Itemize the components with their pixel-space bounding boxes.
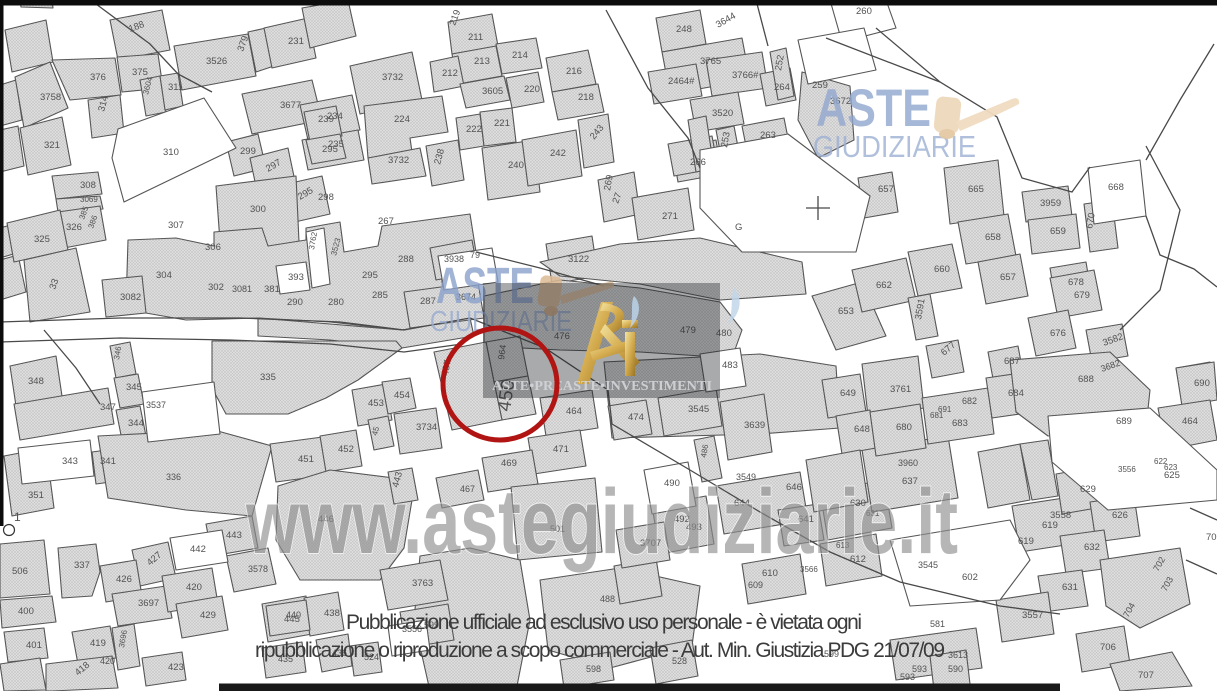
svg-text:662: 662: [876, 280, 892, 291]
svg-text:376: 376: [90, 72, 106, 83]
svg-text:242: 242: [550, 148, 566, 159]
svg-text:660: 660: [934, 264, 950, 275]
svg-text:657: 657: [878, 184, 894, 195]
svg-text:3758: 3758: [40, 92, 61, 103]
svg-text:648: 648: [854, 424, 870, 435]
svg-text:429: 429: [200, 610, 216, 621]
svg-text:683: 683: [952, 418, 968, 429]
svg-text:688: 688: [1078, 374, 1094, 385]
svg-text:263: 263: [760, 130, 776, 141]
svg-text:280: 280: [328, 297, 344, 308]
svg-text:302: 302: [208, 282, 224, 293]
svg-text:ripubblicazione o riproduzione: ripubblicazione o riproduzione a scopo c…: [255, 639, 945, 662]
svg-text:687: 687: [1004, 356, 1020, 367]
svg-text:401: 401: [26, 640, 42, 651]
svg-text:325: 325: [34, 234, 50, 245]
svg-text:423: 423: [168, 662, 184, 673]
svg-text:689: 689: [1116, 416, 1132, 427]
svg-text:658: 658: [985, 232, 1001, 243]
svg-text:3082: 3082: [120, 292, 141, 303]
svg-text:438: 438: [324, 608, 340, 619]
svg-text:684: 684: [1008, 388, 1024, 399]
svg-text:295: 295: [362, 270, 378, 281]
svg-text:351: 351: [28, 490, 44, 501]
svg-text:400: 400: [18, 606, 34, 617]
svg-text:453: 453: [368, 398, 384, 409]
svg-text:442: 442: [190, 544, 206, 555]
svg-text:3732: 3732: [388, 155, 409, 166]
svg-text:619: 619: [1042, 520, 1058, 531]
svg-text:706: 706: [1100, 642, 1116, 653]
svg-text:653: 653: [838, 306, 854, 317]
svg-text:310: 310: [163, 147, 179, 158]
svg-text:308: 308: [80, 180, 96, 191]
svg-text:240: 240: [508, 160, 524, 171]
svg-text:393: 393: [288, 272, 304, 283]
svg-text:ASTE•PREASTE•INVESTIMENTI: ASTE•PREASTE•INVESTIMENTI: [492, 378, 712, 393]
svg-text:3557: 3557: [1022, 610, 1043, 621]
svg-text:443: 443: [226, 530, 242, 541]
svg-text:211: 211: [468, 32, 483, 43]
svg-text:3520: 3520: [712, 108, 733, 119]
svg-text:3677: 3677: [280, 100, 301, 111]
svg-text:464: 464: [566, 406, 582, 417]
svg-text:590: 590: [948, 664, 963, 674]
svg-text:304: 304: [156, 270, 172, 281]
svg-text:3639: 3639: [744, 420, 765, 431]
svg-text:474: 474: [628, 412, 644, 423]
svg-text:341: 341: [100, 456, 116, 467]
svg-text:2464#: 2464#: [668, 76, 695, 87]
svg-text:3081: 3081: [232, 284, 252, 294]
svg-text:300: 300: [250, 204, 266, 215]
svg-text:707: 707: [1138, 670, 1154, 681]
svg-text:676: 676: [1050, 328, 1066, 339]
svg-text:260: 260: [856, 6, 872, 17]
svg-text:609: 609: [748, 580, 763, 590]
svg-text:440: 440: [286, 610, 301, 620]
svg-text:222: 222: [466, 124, 482, 135]
svg-text:3605: 3605: [482, 86, 503, 97]
svg-text:218: 218: [578, 92, 594, 103]
svg-text:3556: 3556: [1118, 465, 1136, 474]
svg-text:623: 623: [1164, 463, 1178, 472]
svg-text:690: 690: [1194, 378, 1210, 389]
svg-text:426: 426: [116, 574, 132, 585]
svg-text:488: 488: [600, 594, 615, 604]
svg-text:464: 464: [1182, 416, 1198, 427]
svg-text:593: 593: [900, 672, 915, 682]
svg-text:221: 221: [494, 118, 510, 129]
svg-text:www.astegiudiziarie.it: www.astegiudiziarie.it: [245, 471, 958, 573]
svg-text:295: 295: [322, 144, 338, 155]
svg-text:1: 1: [14, 510, 21, 524]
svg-text:3697: 3697: [138, 598, 159, 609]
svg-text:3537: 3537: [146, 400, 166, 410]
svg-text:231: 231: [288, 36, 304, 47]
svg-text:248: 248: [676, 24, 692, 35]
svg-text:337: 337: [74, 560, 90, 571]
svg-text:678: 678: [1068, 277, 1084, 288]
svg-text:326: 326: [66, 222, 82, 233]
svg-text:619: 619: [1018, 536, 1034, 547]
svg-text:266: 266: [690, 157, 706, 168]
svg-text:668: 668: [1108, 182, 1124, 193]
svg-text:345: 345: [126, 382, 142, 393]
svg-text:598: 598: [586, 664, 601, 674]
svg-text:469: 469: [501, 458, 517, 469]
svg-text:420: 420: [100, 656, 115, 666]
svg-text:649: 649: [840, 388, 856, 399]
svg-text:214: 214: [512, 50, 528, 61]
svg-text:3526: 3526: [206, 56, 227, 67]
svg-text:381: 381: [264, 284, 280, 295]
svg-text:3959: 3959: [1040, 198, 1061, 209]
svg-text:3763: 3763: [412, 578, 433, 589]
svg-text:306: 306: [205, 242, 221, 253]
svg-text:264: 264: [774, 82, 790, 93]
svg-text:632: 632: [1084, 542, 1100, 553]
svg-text:Pubblicazione ufficiale ad esc: Pubblicazione ufficiale ad esclusivo uso…: [346, 611, 862, 634]
svg-text:271: 271: [662, 211, 678, 222]
svg-text:581: 581: [930, 619, 945, 629]
svg-text:679: 679: [1074, 290, 1090, 301]
svg-text:506: 506: [12, 566, 28, 577]
svg-text:212: 212: [442, 68, 458, 79]
svg-text:213: 213: [474, 56, 490, 67]
svg-text:700: 700: [1206, 532, 1217, 543]
svg-text:336: 336: [166, 472, 181, 482]
svg-text:659: 659: [1050, 226, 1066, 237]
svg-text:299: 299: [240, 146, 256, 157]
svg-text:483: 483: [722, 360, 738, 371]
svg-text:631: 631: [1062, 582, 1078, 593]
svg-text:3734: 3734: [416, 422, 437, 433]
svg-text:3732: 3732: [382, 72, 403, 83]
svg-text:3545: 3545: [688, 404, 709, 415]
svg-text:344: 344: [128, 418, 144, 429]
svg-text:347: 347: [100, 402, 116, 413]
svg-text:681: 681: [930, 411, 944, 420]
svg-text:298: 298: [318, 192, 334, 203]
svg-text:G: G: [735, 222, 742, 233]
svg-text:419: 419: [90, 638, 106, 649]
svg-text:3960: 3960: [898, 458, 918, 468]
svg-text:454: 454: [394, 390, 410, 401]
svg-text:3613: 3613: [948, 650, 968, 660]
svg-text:3761: 3761: [890, 384, 911, 395]
svg-text:657: 657: [1000, 272, 1016, 283]
svg-text:311: 311: [168, 82, 183, 93]
svg-text:3766#: 3766#: [732, 70, 759, 81]
svg-text:348: 348: [28, 376, 44, 387]
svg-text:629: 629: [1080, 484, 1096, 495]
svg-text:471: 471: [553, 444, 569, 455]
svg-text:3122: 3122: [568, 254, 589, 265]
svg-text:665: 665: [968, 184, 984, 195]
svg-text:220: 220: [524, 84, 540, 95]
svg-text:288: 288: [398, 254, 414, 265]
svg-text:224: 224: [394, 114, 410, 125]
svg-text:290: 290: [287, 297, 303, 308]
svg-text:335: 335: [260, 372, 276, 383]
svg-text:216: 216: [566, 66, 582, 77]
svg-text:602: 602: [962, 572, 978, 583]
svg-text:682: 682: [962, 396, 977, 406]
svg-text:307: 307: [168, 220, 184, 231]
svg-text:451: 451: [298, 454, 314, 465]
svg-text:285: 285: [372, 290, 388, 301]
svg-text:3069: 3069: [80, 195, 98, 204]
svg-text:626: 626: [1112, 510, 1128, 521]
svg-text:3765: 3765: [700, 56, 721, 67]
svg-text:267: 267: [378, 216, 394, 227]
svg-text:239: 239: [318, 114, 334, 125]
svg-text:420: 420: [186, 582, 202, 593]
svg-text:321: 321: [44, 140, 60, 151]
svg-text:680: 680: [896, 422, 912, 433]
svg-text:343: 343: [62, 456, 78, 467]
svg-text:452: 452: [338, 444, 354, 455]
